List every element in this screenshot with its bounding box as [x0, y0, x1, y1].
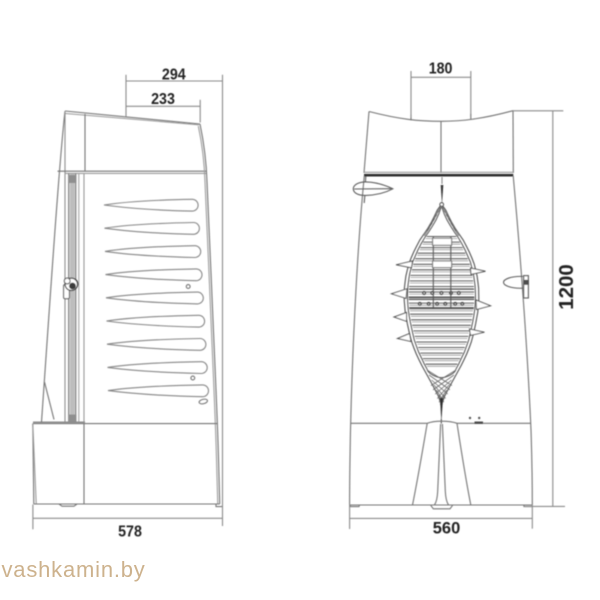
svg-text:1200: 1200: [555, 264, 578, 310]
svg-text:560: 560: [433, 520, 461, 538]
svg-text:233: 233: [151, 92, 175, 109]
svg-text:180: 180: [429, 61, 453, 78]
svg-text:vashkamin.by: vashkamin.by: [2, 557, 146, 582]
svg-text:294: 294: [162, 67, 186, 84]
svg-text:578: 578: [118, 524, 142, 541]
